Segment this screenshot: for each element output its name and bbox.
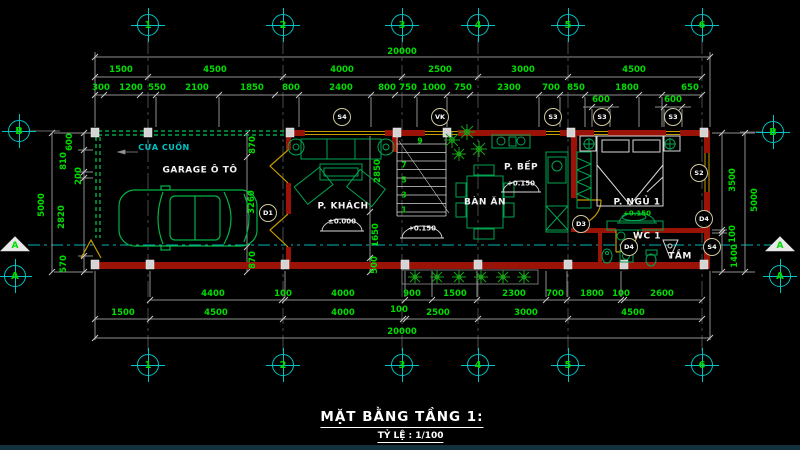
title-block: MẶT BẰNG TẦNG 1: TỶ LỆ : 1/100	[320, 406, 483, 443]
drawing-title: MẶT BẰNG TẦNG 1:	[320, 409, 483, 428]
doors	[270, 150, 638, 252]
car	[119, 186, 257, 250]
drawing-scale: TỶ LỆ : 1/100	[378, 431, 444, 443]
dimension-lines	[52, 52, 755, 340]
shower	[663, 240, 678, 258]
stairs	[397, 136, 449, 216]
bottom-strip	[0, 445, 800, 450]
floor-plan-canvas: 123456123456BABA A A 2000015004500400025…	[0, 0, 800, 450]
plan-linework	[0, 0, 800, 450]
dimension-ticks	[49, 54, 748, 341]
bed	[580, 136, 680, 206]
furniture	[288, 135, 676, 266]
leader-line	[118, 150, 138, 154]
